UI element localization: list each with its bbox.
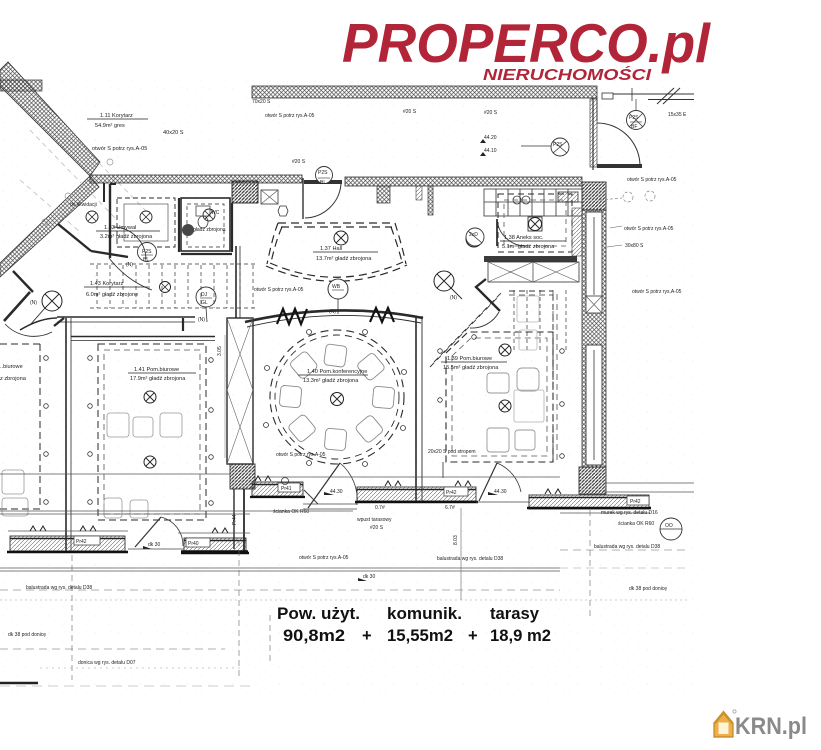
svg-text:tarasy: tarasy bbox=[490, 605, 540, 623]
svg-text:2xD: 2xD bbox=[469, 232, 478, 238]
svg-text:1.43 Korytarz: 1.43 Korytarz bbox=[90, 281, 123, 287]
svg-text:otwór S potrz rys.A-05: otwór S potrz rys.A-05 bbox=[254, 287, 304, 293]
svg-text:P2S: P2S bbox=[142, 249, 152, 255]
svg-text:ścianka OK R60: ścianka OK R60 bbox=[618, 521, 654, 527]
svg-text:3.05: 3.05 bbox=[217, 346, 223, 356]
svg-text:dk 30: dk 30 bbox=[363, 574, 375, 580]
svg-text:P2S: P2S bbox=[553, 142, 563, 148]
svg-text:3.2m² gładź zbrojona: 3.2m² gładź zbrojona bbox=[100, 234, 153, 240]
svg-text:otwór S potrz rys.A-05: otwór S potrz rys.A-05 bbox=[265, 113, 315, 119]
svg-text:44.30: 44.30 bbox=[330, 489, 343, 495]
svg-text:5.1m² gładź zbrojona: 5.1m² gładź zbrojona bbox=[502, 244, 555, 250]
svg-text:8.03: 8.03 bbox=[453, 535, 459, 545]
svg-text:murek wg rys. detalu D16: murek wg rys. detalu D16 bbox=[601, 510, 658, 516]
svg-text:+: + bbox=[468, 627, 478, 645]
svg-text:40x20 S: 40x20 S bbox=[163, 130, 184, 136]
svg-text:(N): (N) bbox=[126, 262, 133, 268]
svg-text:(N): (N) bbox=[30, 300, 37, 306]
svg-text:1.39 Pom.biurowe: 1.39 Pom.biurowe bbox=[447, 356, 492, 362]
svg-text:DJ: DJ bbox=[201, 292, 208, 298]
svg-text:PROPERCO.pl: PROPERCO.pl bbox=[342, 12, 712, 74]
svg-text:90,8m2: 90,8m2 bbox=[283, 627, 345, 645]
svg-text:6.7#: 6.7# bbox=[445, 505, 455, 511]
svg-text:Pr42: Pr42 bbox=[446, 490, 457, 496]
svg-text:dk 38 pod donicę: dk 38 pod donicę bbox=[8, 632, 46, 638]
svg-text:17.9m² gładź zbrojona: 17.9m² gładź zbrojona bbox=[130, 376, 186, 382]
svg-text:Pr41: Pr41 bbox=[281, 486, 292, 492]
svg-text:gładź zbrojona: gładź zbrojona bbox=[193, 227, 226, 233]
svg-text:otwór S potrz rys.A-05: otwór S potrz rys.A-05 bbox=[92, 146, 147, 152]
svg-text:ścianka OK R60: ścianka OK R60 bbox=[273, 509, 309, 515]
svg-text:+: + bbox=[362, 627, 372, 645]
svg-text:20x20 S pod stropem: 20x20 S pod stropem bbox=[428, 449, 476, 455]
svg-text:donica wg rys. detalu D07: donica wg rys. detalu D07 bbox=[78, 660, 136, 666]
svg-text:balustrada wg rys. detalu D38: balustrada wg rys. detalu D38 bbox=[26, 585, 92, 591]
svg-text:13.7m² gładź zbrojona: 13.7m² gładź zbrojona bbox=[316, 256, 372, 262]
svg-text:30x80 S: 30x80 S bbox=[625, 243, 644, 249]
svg-text:OO: OO bbox=[665, 523, 673, 529]
svg-text:44.20: 44.20 bbox=[484, 135, 497, 141]
svg-text:1.11 Korytarz: 1.11 Korytarz bbox=[100, 113, 133, 119]
svg-text:70x20 S: 70x20 S bbox=[252, 99, 271, 105]
svg-text:54.9m² gres: 54.9m² gres bbox=[95, 123, 125, 129]
svg-text:0.7#: 0.7# bbox=[375, 505, 385, 511]
svg-text:BL: BL bbox=[320, 180, 326, 186]
svg-text:#20 S: #20 S bbox=[370, 525, 384, 531]
svg-text:44.10: 44.10 bbox=[484, 148, 497, 154]
svg-text:dk 30: dk 30 bbox=[148, 542, 160, 548]
svg-text:1.37 Hall: 1.37 Hall bbox=[320, 246, 342, 252]
svg-text:Pr44: Pr44 bbox=[232, 514, 238, 525]
svg-text:WB: WB bbox=[332, 284, 341, 290]
svg-text:do likwidacji: do likwidacji bbox=[70, 202, 97, 208]
svg-text:13.3m² gładź zbrojona: 13.3m² gładź zbrojona bbox=[303, 378, 359, 384]
svg-text:GL: GL bbox=[201, 300, 208, 306]
svg-text:otwór S potrz rys.A-05: otwór S potrz rys.A-05 bbox=[627, 177, 677, 183]
svg-text:15.5m² gładź zbrojona: 15.5m² gładź zbrojona bbox=[443, 365, 499, 371]
svg-text:15x35 E: 15x35 E bbox=[668, 112, 687, 118]
svg-text:1.38 Aneks soc.: 1.38 Aneks soc. bbox=[504, 235, 544, 241]
svg-text:wpust tarasowy: wpust tarasowy bbox=[357, 517, 392, 523]
svg-text:(N): (N) bbox=[450, 295, 457, 301]
svg-text:Pow. użyt.: Pow. użyt. bbox=[277, 605, 360, 623]
svg-text:z zbrojona: z zbrojona bbox=[0, 376, 27, 382]
svg-text:KRN.pl: KRN.pl bbox=[735, 713, 807, 740]
svg-text:NIERUCHOMOŚCI: NIERUCHOMOŚCI bbox=[483, 66, 652, 84]
svg-text:Pr42: Pr42 bbox=[76, 539, 87, 545]
svg-text:#20 S: #20 S bbox=[403, 109, 417, 115]
svg-text:dk 38 pod donicę: dk 38 pod donicę bbox=[629, 586, 667, 592]
svg-text:otwór S potrz rys.A-05: otwór S potrz rys.A-05 bbox=[632, 289, 682, 295]
svg-text:18,9 m2: 18,9 m2 bbox=[490, 627, 551, 645]
svg-text:(N): (N) bbox=[198, 317, 205, 323]
svg-text:otwór S potrz rys.A-05: otwór S potrz rys.A-05 bbox=[299, 555, 349, 561]
svg-text:15,55m2: 15,55m2 bbox=[387, 627, 453, 645]
svg-text:komunik.: komunik. bbox=[387, 605, 462, 623]
svg-text:44.30: 44.30 bbox=[494, 489, 507, 495]
svg-text:6.0m² gładź zbrojone: 6.0m² gładź zbrojone bbox=[86, 292, 138, 298]
svg-text:BF: BF bbox=[631, 124, 637, 130]
svg-text:balustrada wg rys. detalu D38: balustrada wg rys. detalu D38 bbox=[437, 556, 503, 562]
svg-text:P2S: P2S bbox=[318, 170, 328, 176]
svg-text:1.41 Pom.biurowe: 1.41 Pom.biurowe bbox=[134, 367, 179, 373]
svg-text:otwór S potrz rys.A-05: otwór S potrz rys.A-05 bbox=[624, 226, 674, 232]
svg-text:#20 S: #20 S bbox=[292, 159, 306, 165]
svg-text:Pr40: Pr40 bbox=[188, 541, 199, 547]
svg-text:balustrada wg rys. detalu D38: balustrada wg rys. detalu D38 bbox=[594, 544, 660, 550]
svg-text:1.40 Pom.konferencyjne: 1.40 Pom.konferencyjne bbox=[307, 369, 367, 375]
svg-text:otwór S potrz rys.A-05: otwór S potrz rys.A-05 bbox=[276, 452, 326, 458]
svg-text:#20 S: #20 S bbox=[484, 110, 498, 116]
svg-text:Pr42: Pr42 bbox=[630, 499, 641, 505]
svg-text:..biurowe: ..biurowe bbox=[0, 364, 23, 370]
